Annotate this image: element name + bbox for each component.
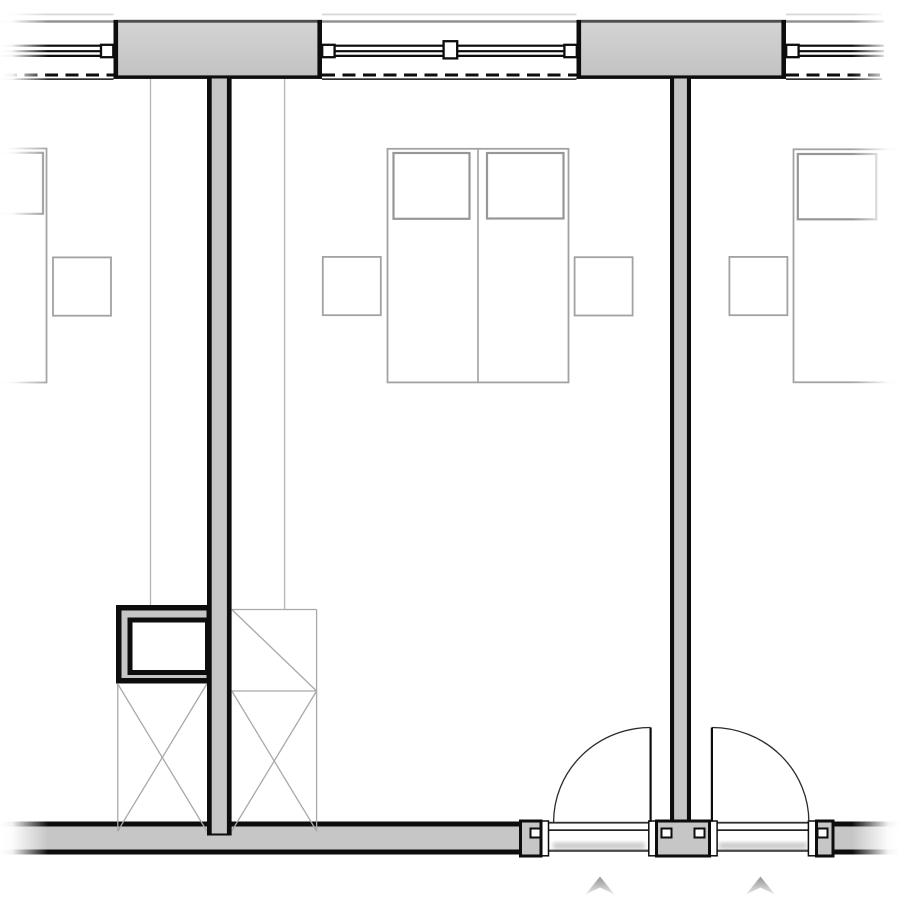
jamb-rebate-notch	[818, 829, 828, 838]
window-jamb	[114, 20, 119, 79]
threshold-shading	[553, 843, 645, 850]
nightstand	[729, 257, 787, 315]
door-frame	[808, 821, 816, 856]
window-sill-outer-line	[322, 14, 577, 16]
pier-body	[577, 20, 787, 79]
left-fade	[0, 0, 48, 900]
pier-top-edge	[577, 20, 787, 23]
entry-arrows	[586, 877, 776, 895]
wardrobe-right	[232, 610, 317, 832]
threshold-bottom-line	[710, 850, 817, 852]
entry-arrow-icon	[746, 877, 775, 895]
floor-plan-stage	[0, 0, 900, 900]
jamb-rebate-notch	[531, 829, 541, 838]
jamb-rebate-notch	[662, 829, 672, 838]
window-mullion-icon	[444, 41, 458, 58]
window-mullion-icon	[322, 45, 334, 57]
pier-bottom-edge	[577, 75, 787, 79]
wall-line-across-opening	[710, 822, 817, 824]
window-mullion-icon	[101, 45, 113, 57]
bottom-wall-left-segment	[0, 822, 541, 855]
nightstand	[53, 257, 111, 315]
door-left	[541, 728, 657, 856]
window-jamb	[577, 20, 582, 79]
pillow	[394, 153, 470, 219]
partition-wall-right	[670, 79, 691, 823]
wardrobe-left	[118, 684, 207, 832]
wall-pier-left	[114, 20, 323, 79]
right-fade	[852, 0, 900, 900]
pier-top-edge	[114, 20, 323, 23]
duct-shaft	[116, 605, 212, 684]
window-jamb	[781, 20, 786, 79]
entry-arrow-icon	[586, 877, 615, 895]
door-right	[710, 728, 817, 856]
wall-line-across-opening	[541, 822, 657, 824]
window-mullion-icon	[786, 45, 798, 57]
window-center	[322, 14, 577, 81]
window-inner-face-line	[322, 78, 577, 80]
floor-plan-canvas	[0, 0, 900, 900]
pier-bottom-edge	[114, 75, 323, 79]
duct-inner-void	[133, 623, 206, 671]
threshold-top-line	[541, 829, 657, 831]
door-swing-arc	[712, 728, 809, 823]
threshold-bottom-line	[541, 850, 657, 852]
nightstand	[323, 257, 381, 315]
bed-double-center	[388, 149, 569, 383]
wardrobe-diagonal	[232, 610, 317, 692]
partition-wall-left	[207, 79, 232, 836]
pier-body	[114, 20, 323, 79]
window-jamb	[317, 20, 322, 79]
bottom-wall	[0, 822, 900, 855]
door-swing-arc	[554, 728, 651, 823]
exterior-window-wall	[0, 14, 884, 81]
window-mullion-icon	[564, 45, 576, 57]
edge-fades	[0, 0, 900, 900]
threshold-top-line	[710, 829, 817, 831]
wall-pier-right	[577, 20, 787, 79]
jamb-rebate-notch	[695, 829, 705, 838]
pillow	[487, 153, 564, 219]
threshold-shading	[719, 843, 807, 850]
wall-core	[674, 79, 687, 822]
wall-core	[212, 79, 227, 834]
nightstand	[575, 257, 633, 315]
